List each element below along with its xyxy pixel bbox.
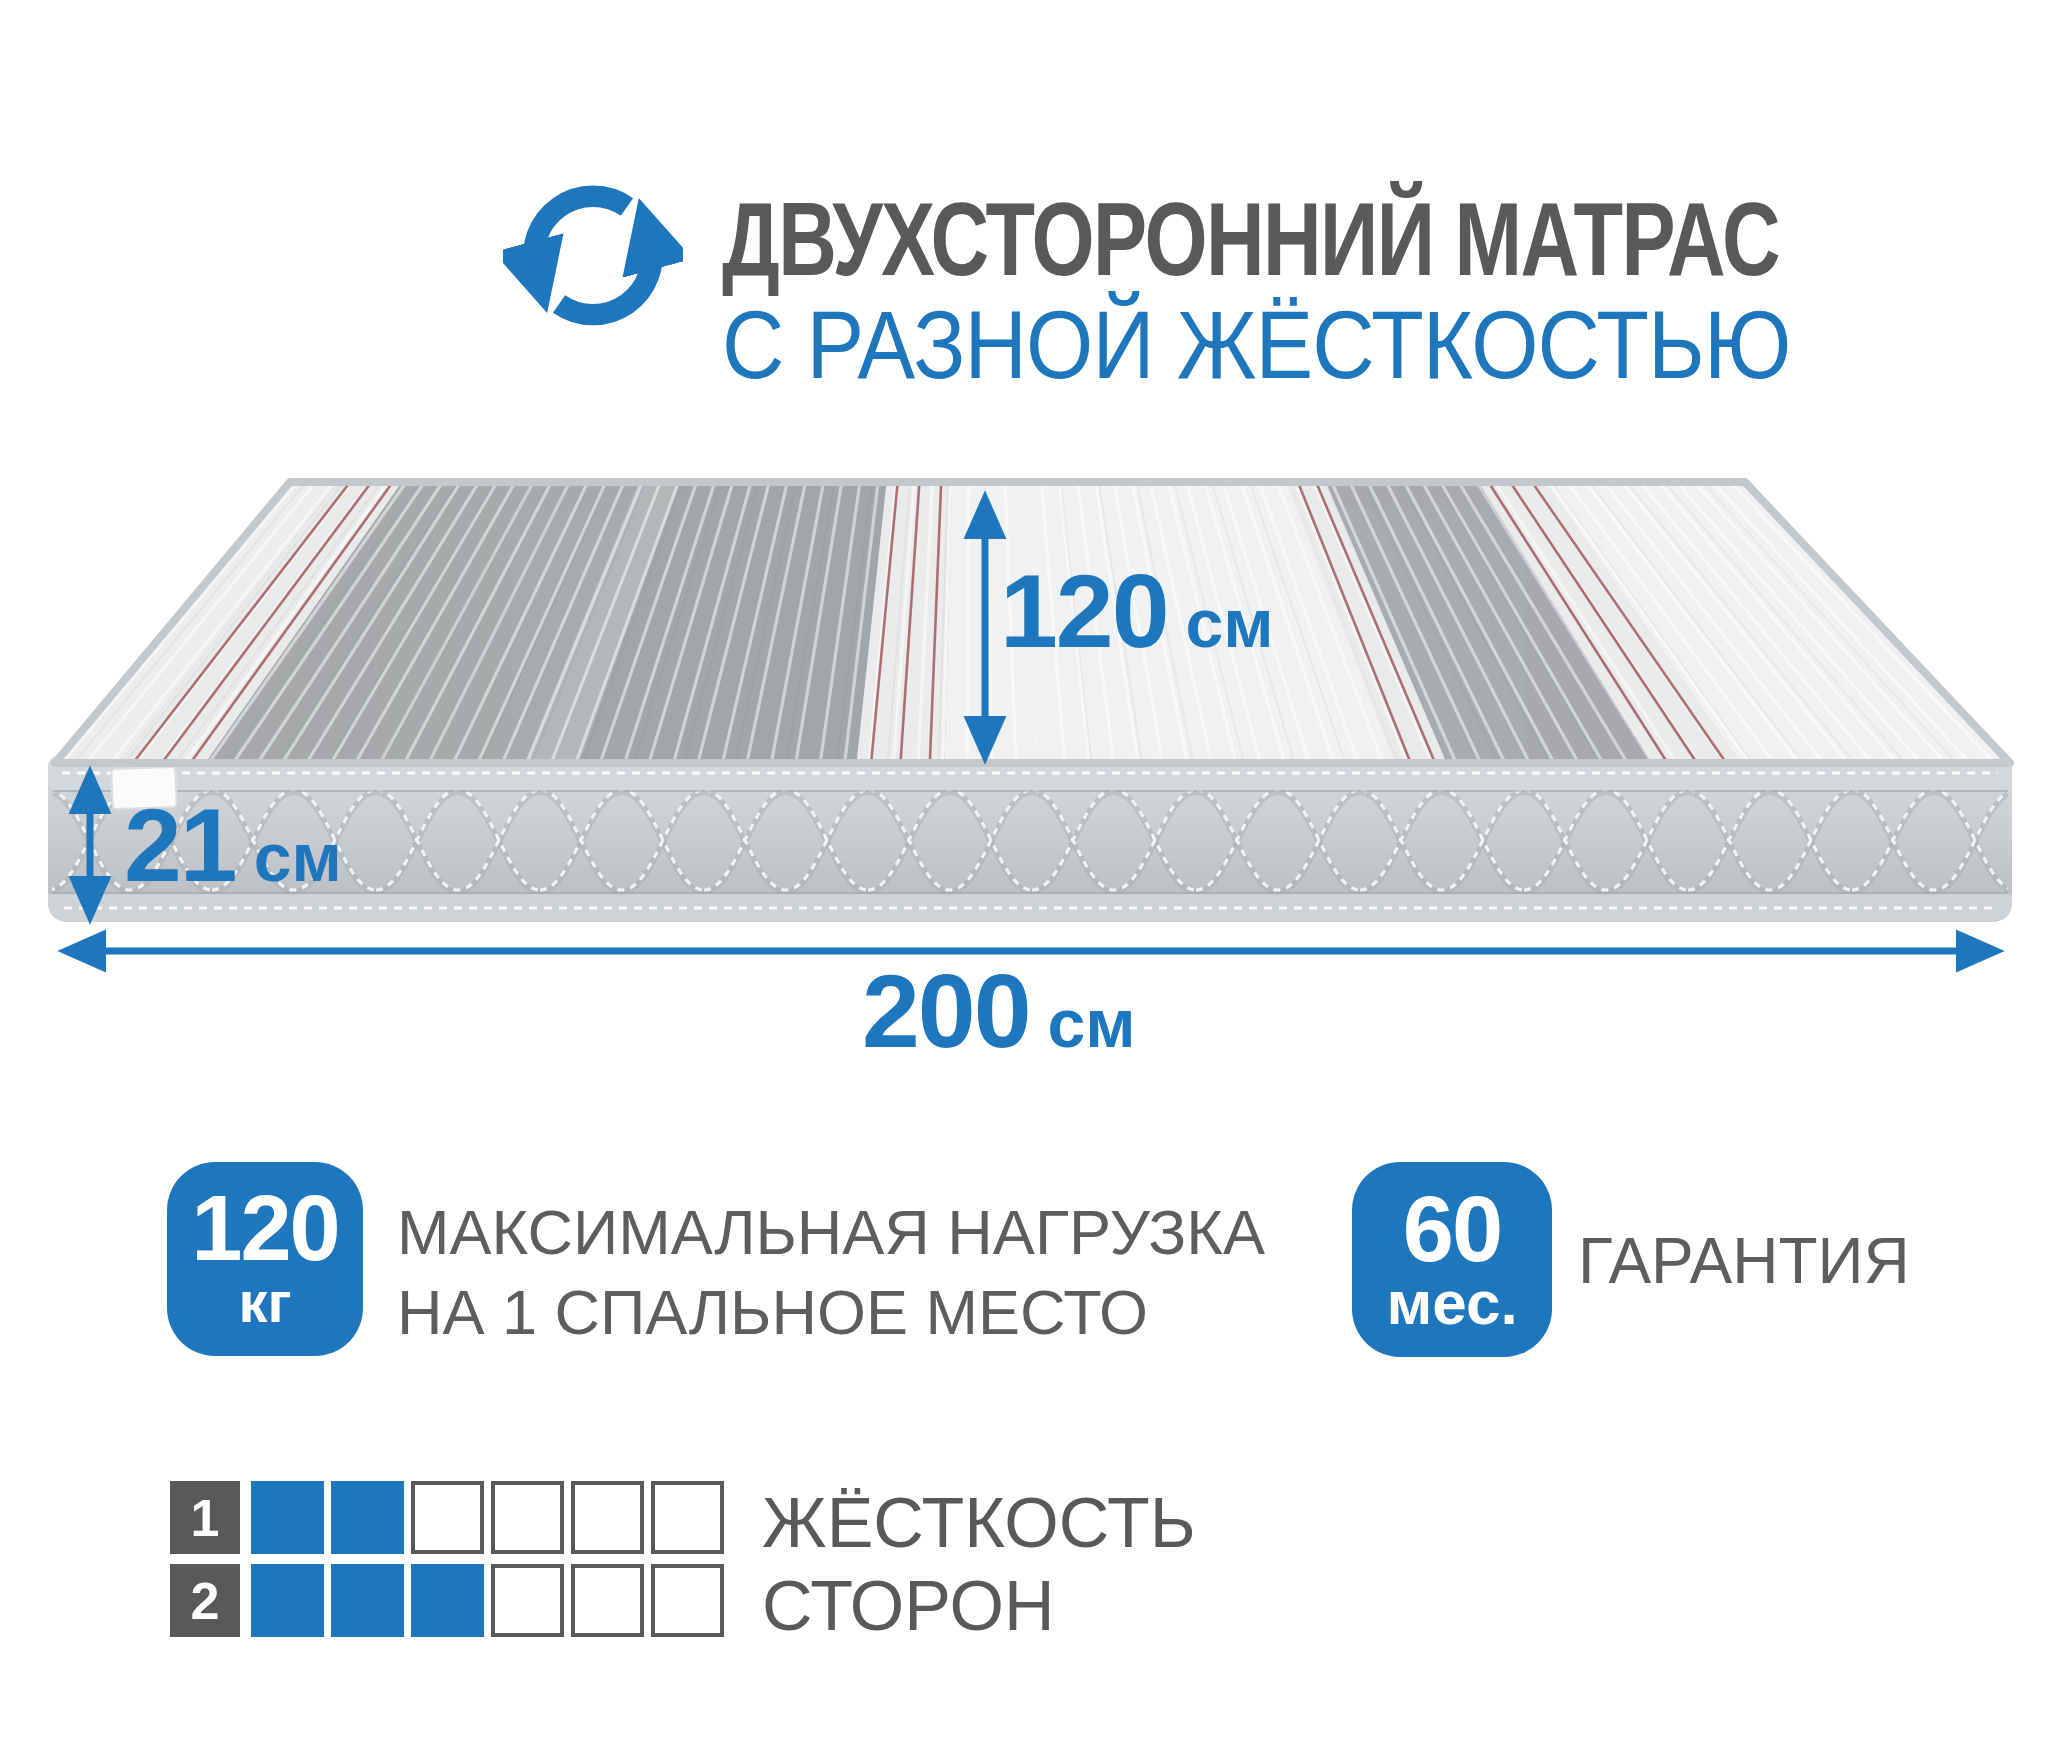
firmness-row-number: 1	[170, 1481, 240, 1554]
firmness-cell-empty	[571, 1481, 644, 1554]
length-unit: см	[1048, 985, 1136, 1061]
firmness-cell-empty	[571, 1564, 644, 1637]
warranty-unit: мес.	[1386, 1272, 1517, 1334]
length-dimension-label: 200см	[862, 952, 1136, 1071]
firmness-row-number: 2	[170, 1564, 240, 1637]
firmness-cell-filled	[411, 1564, 484, 1637]
max-load-description-line2: НА 1 СПАЛЬНОЕ МЕСТО	[397, 1272, 1265, 1352]
firmness-cell-empty	[651, 1564, 724, 1637]
width-unit: см	[1186, 585, 1274, 661]
infographic-canvas: ДВУХСТОРОННИЙ МАТРАС С РАЗНОЙ ЖЁСТКОСТЬЮ	[0, 0, 2048, 1757]
firmness-cell-empty	[651, 1481, 724, 1554]
warranty-label: ГАРАНТИЯ	[1578, 1224, 1910, 1298]
firmness-cell-empty	[491, 1564, 564, 1637]
firmness-cell-empty	[491, 1481, 564, 1554]
firmness-label: ЖЁСТКОСТЬ СТОРОН	[762, 1482, 1196, 1648]
max-load-description-line1: МАКСИМАЛЬНАЯ НАГРУЗКА	[397, 1192, 1265, 1272]
height-dimension-label: 21см	[124, 786, 342, 905]
firmness-cell-filled	[331, 1481, 404, 1554]
height-value: 21	[124, 787, 236, 903]
max-load-badge: 120 кг	[167, 1162, 363, 1356]
firmness-row: 1	[170, 1481, 724, 1554]
max-load-value: 120	[191, 1185, 339, 1271]
height-unit: см	[254, 819, 342, 895]
firmness-cell-empty	[411, 1481, 484, 1554]
max-load-description: МАКСИМАЛЬНАЯ НАГРУЗКА НА 1 СПАЛЬНОЕ МЕСТ…	[397, 1192, 1265, 1352]
warranty-badge: 60 мес.	[1352, 1162, 1552, 1357]
length-value: 200	[862, 953, 1030, 1069]
firmness-label-line2: СТОРОН	[762, 1565, 1196, 1648]
firmness-cell-filled	[331, 1564, 404, 1637]
mattress-side	[48, 756, 2012, 922]
firmness-cell-filled	[251, 1564, 324, 1637]
warranty-value: 60	[1403, 1186, 1501, 1272]
width-dimension-label: 120см	[1000, 552, 1274, 671]
firmness-scale: 12	[170, 1481, 724, 1637]
firmness-cell-filled	[251, 1481, 324, 1554]
firmness-label-line1: ЖЁСТКОСТЬ	[762, 1482, 1196, 1565]
width-value: 120	[1000, 553, 1168, 669]
firmness-row: 2	[170, 1564, 724, 1637]
max-load-unit: кг	[238, 1271, 291, 1333]
